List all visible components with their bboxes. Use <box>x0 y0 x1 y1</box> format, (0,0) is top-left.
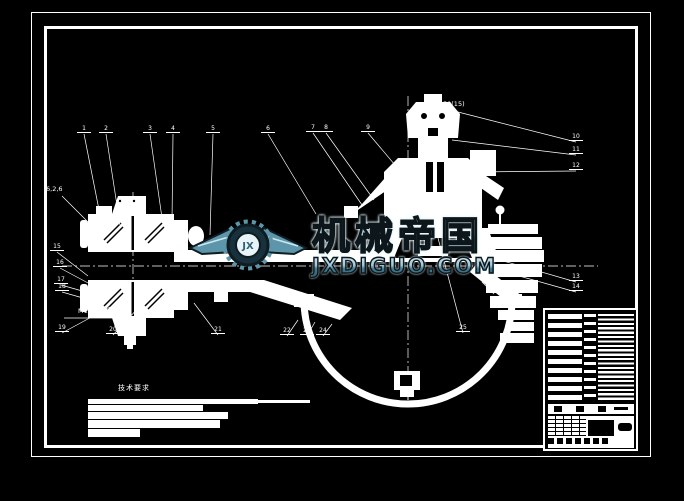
callout-4: 4 <box>166 125 180 133</box>
note-text-line <box>88 412 228 419</box>
note-text-line <box>88 405 203 411</box>
drawing-number-cell <box>588 420 614 436</box>
parts-list-column <box>548 314 582 402</box>
callout-24: 24 <box>316 327 330 335</box>
wheel-hub-upper-section <box>80 196 204 252</box>
callout-9: 9 <box>361 124 375 132</box>
note-text-line <box>88 429 140 437</box>
dimension-label: 6,2,6 <box>46 186 63 193</box>
winged-gear-logo: JX <box>188 212 308 282</box>
logo-badge-text: JX <box>241 241 254 252</box>
material-cell <box>618 423 632 431</box>
watermark-domain: JXDIGUO.COM <box>312 256 497 277</box>
callout-13: 13 <box>569 273 583 281</box>
callout-3: 3 <box>143 125 157 133</box>
callout-22: 22 <box>280 327 294 335</box>
callout-10: 10 <box>569 133 583 141</box>
watermark: JX 机械帝国 JXDIGUO.COM <box>188 212 497 282</box>
callout-25: 25 <box>456 324 470 332</box>
callout-12: 12 <box>569 162 583 170</box>
dimension-label: 50(15) <box>443 101 465 108</box>
callout-7: 7 <box>306 124 320 132</box>
watermark-brand: 机械帝国 <box>312 217 497 255</box>
notes-title: 技术要求 <box>118 383 150 393</box>
callout-26: 26 <box>487 285 501 293</box>
title-area <box>548 416 634 448</box>
dimension-label: M10×1 <box>78 308 101 315</box>
signature-grid <box>548 416 586 436</box>
callout-16: 16 <box>53 259 67 267</box>
callout-2: 2 <box>99 125 113 133</box>
watermark-text: 机械帝国 JXDIGUO.COM <box>312 217 497 277</box>
callout-19: 19 <box>55 324 69 332</box>
callout-6: 6 <box>261 125 275 133</box>
callout-11: 11 <box>569 146 583 154</box>
callout-21: 21 <box>211 326 225 334</box>
note-text-line <box>256 400 310 403</box>
callout-20: 20 <box>106 326 120 334</box>
callout-14: 14 <box>569 283 583 291</box>
callout-1: 1 <box>77 125 91 133</box>
cad-drawing-sheet: 1234567891011121314151617181920212223242… <box>0 0 684 501</box>
callout-23: 23 <box>300 327 314 335</box>
parts-list-column <box>584 314 596 402</box>
callout-8: 8 <box>319 124 333 132</box>
stamp-row <box>548 404 634 414</box>
bottom-row-cells <box>548 438 610 444</box>
callout-5: 5 <box>206 125 220 133</box>
parts-list-column <box>598 314 634 402</box>
note-text-line <box>88 420 220 428</box>
title-block <box>543 308 638 451</box>
note-text-line <box>88 399 258 404</box>
callout-18: 18 <box>55 283 69 291</box>
callout-15: 15 <box>50 243 64 251</box>
